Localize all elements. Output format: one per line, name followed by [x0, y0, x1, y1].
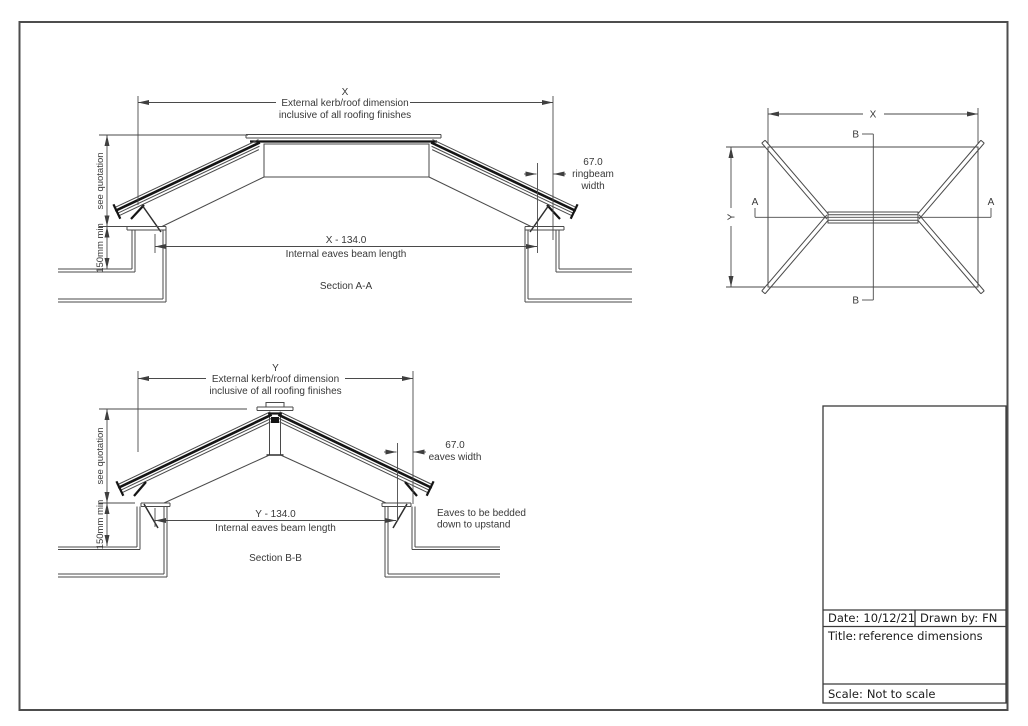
aa-external-dim-line2: inclusive of all roofing finishes [279, 110, 411, 121]
bb-eaves-width-value: 67.0 [445, 440, 465, 451]
title-block-date: Date:10/12/21 [828, 611, 915, 625]
title-block: Date:10/12/21 Drawn by:FN Title:referenc… [823, 406, 1006, 703]
bb-internal-dim-label: Internal eaves beam length [215, 523, 336, 534]
aa-internal-dim-label: Internal eaves beam length [286, 249, 407, 260]
section-bb-view: Y External kerb/roof dimension inclusive… [58, 363, 526, 577]
tb-title-label: Title: [827, 629, 857, 643]
title-block-frame [823, 406, 1006, 703]
tb-date-value: 10/12/21 [863, 611, 915, 625]
title-block-title: Title:reference dimensions [827, 629, 983, 643]
drawing-sheet: X External kerb/roof dimension inclusive… [0, 0, 1028, 726]
aa-internal-dim-value: X - 134.0 [326, 235, 367, 246]
section-aa-dimensions: X External kerb/roof dimension inclusive… [95, 87, 614, 292]
title-block-scale: Scale:Not to scale [828, 687, 935, 701]
plan-dim-x-label: X [870, 110, 877, 121]
bb-eaves-note-line1: Eaves to be bedded [437, 508, 526, 519]
aa-ringbeam-label-line2: width [580, 181, 604, 192]
page-border [20, 22, 1008, 710]
plan-dim-y-label: Y [727, 213, 738, 220]
title-block-drawn-by: Drawn by:FN [920, 611, 997, 625]
bb-dim-y-label: Y [272, 363, 279, 374]
aa-dim-x-label: X [342, 87, 349, 98]
aa-caption: Section A-A [320, 281, 373, 292]
aa-see-quotation-label: see quotation [95, 152, 106, 209]
plan-section-b-top-label: B [852, 130, 859, 141]
aa-ringbeam-label-line1: ringbeam [572, 169, 614, 180]
plan-section-a-left-label: A [752, 197, 759, 208]
section-bb-dimensions: Y External kerb/roof dimension inclusive… [95, 363, 526, 564]
plan-section-a-right-label: A [988, 197, 995, 208]
section-aa-view: X External kerb/roof dimension inclusive… [58, 87, 632, 302]
bb-internal-dim-value: Y - 134.0 [255, 509, 296, 520]
bb-eaves-note-line2: down to upstand [437, 520, 510, 531]
aa-external-dim-line1: External kerb/roof dimension [281, 98, 408, 109]
tb-drawn-by-value: FN [982, 611, 997, 625]
bb-eaves-width-label: eaves width [429, 452, 482, 463]
bb-external-dim-line1: External kerb/roof dimension [212, 374, 339, 385]
bb-external-dim-line2: inclusive of all roofing finishes [209, 386, 341, 397]
aa-upstand-min-label: 150mm min [95, 223, 106, 273]
aa-ringbeam-value: 67.0 [583, 157, 603, 168]
bb-upstand-min-label: 150mm min [95, 500, 106, 550]
plan-section-b-bottom-label: B [852, 296, 859, 307]
section-bb-structure [58, 403, 500, 578]
plan-section-markers: A A B B [752, 130, 995, 307]
tb-scale-label: Scale: [828, 687, 863, 701]
tb-date-label: Date: [828, 611, 859, 625]
tb-title-value: reference dimensions [859, 629, 983, 643]
bb-caption: Section B-B [249, 553, 302, 564]
tb-drawn-by-label: Drawn by: [920, 611, 978, 625]
plan-view: A A B B X Y [726, 108, 995, 307]
bb-see-quotation-label: see quotation [95, 427, 106, 484]
section-aa-structure [58, 135, 632, 303]
tb-scale-value: Not to scale [867, 687, 936, 701]
